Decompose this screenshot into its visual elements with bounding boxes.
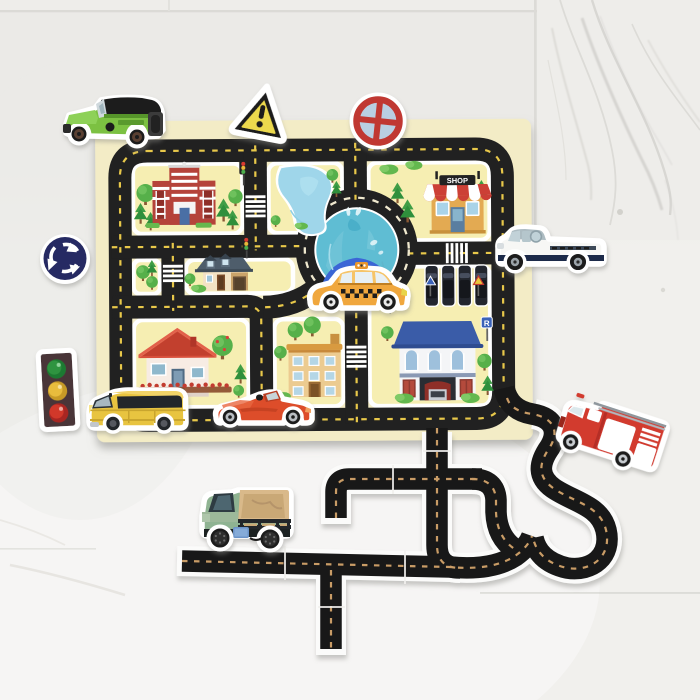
svg-text:R: R bbox=[484, 319, 490, 328]
svg-text:SHOP: SHOP bbox=[447, 176, 468, 185]
